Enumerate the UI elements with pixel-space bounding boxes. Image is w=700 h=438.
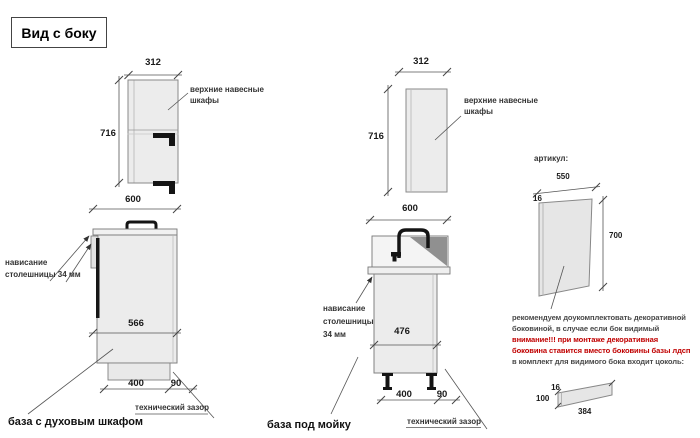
mid-upper-cabinet-label: верхние навесные шкафы	[464, 95, 538, 117]
cabinet-foot-left	[382, 373, 393, 390]
technical-drawing-layer	[0, 0, 700, 438]
panel-warning-line1: внимание!!! при монтаже декоративная	[512, 334, 690, 345]
dim-plinth-thickness: 16	[548, 383, 560, 392]
dim-mid-upper-width: 312	[401, 56, 441, 67]
dim-plinth-height: 100	[536, 394, 549, 403]
mid-upper-cabinet-label-line1: верхние навесные	[464, 95, 538, 106]
side-view-drawing-sheet: Вид с боку 312 716 верхние навесные шкаф…	[0, 0, 700, 438]
oven-door-edge	[96, 238, 100, 318]
dim-panel-thickness: 16	[533, 194, 542, 203]
left-caption-leader	[28, 349, 113, 414]
mid-caption-leader	[331, 357, 358, 414]
dim-left-base-gap: 90	[162, 378, 190, 389]
faucet-spout	[391, 252, 401, 257]
cabinet-foot-right	[426, 373, 437, 390]
mid-tech-gap-label: технический зазор	[406, 416, 482, 427]
left-upper-cabinet-label-line2: шкафы	[190, 95, 264, 106]
page-title: Вид с боку	[11, 17, 107, 48]
left-tech-gap-label: технический зазор	[135, 402, 209, 413]
panel-note-line3: в комплект для видимого бока входит цоко…	[512, 356, 690, 367]
plinth-strip-drawing	[558, 383, 612, 407]
left-overhang-label: нависание столешницы 34 мм	[5, 257, 81, 281]
dim-mid-base-depth: 476	[382, 326, 422, 337]
mid-base-cabinet-body	[374, 274, 437, 373]
dim-mid-upper-height: 716	[356, 131, 396, 142]
mid-upper-cabinet-drawing	[406, 89, 447, 192]
dim-left-base-width: 600	[113, 194, 153, 205]
faucet-spout-tip	[393, 257, 397, 262]
decor-side-panel	[539, 199, 592, 296]
mid-countertop	[368, 267, 450, 274]
mid-overhang-label-line3: 34 мм	[323, 328, 374, 341]
artikul-header: артикул:	[534, 153, 568, 164]
dim-left-base-plinth: 400	[116, 378, 156, 389]
mid-overhang-arrow	[356, 277, 372, 303]
mid-overhang-label-line2: столешницы	[323, 315, 374, 328]
dim-panel-width: 550	[545, 172, 581, 181]
panel-note-block: рекомендуем доукомплектовать декоративно…	[512, 312, 690, 367]
panel-warning-line2: боковина ставится вместо боковины базы л…	[512, 345, 690, 356]
dim-plinth-length: 384	[578, 407, 591, 416]
left-upper-cabinet-label-line1: верхние навесные	[190, 84, 264, 95]
mid-upper-cabinet-label-line2: шкафы	[464, 106, 538, 117]
decor-side-panel-drawing	[539, 199, 592, 296]
left-overhang-label-line2: столешницы 34 мм	[5, 269, 81, 281]
mid-base-caption: база под мойку	[267, 419, 351, 431]
mid-upper-cabinet-body	[406, 89, 447, 192]
left-countertop	[93, 229, 177, 235]
dim-left-base-depth: 566	[116, 318, 156, 329]
dim-left-upper-width: 312	[133, 57, 173, 68]
panel-note-line2: боковиной, в случае если бок видимый	[512, 323, 690, 334]
plinth-strip	[558, 383, 612, 407]
dim-panel-height: 700	[609, 231, 622, 240]
left-upper-cabinet-body	[128, 80, 178, 183]
mid-overhang-label: нависание столешницы 34 мм	[323, 302, 374, 341]
left-upper-cabinet-label: верхние навесные шкафы	[190, 84, 264, 106]
mid-base-cabinet-drawing	[368, 230, 450, 390]
mid-overhang-label-line1: нависание	[323, 302, 374, 315]
left-overhang-label-line1: нависание	[5, 257, 81, 269]
dim-left-upper-height: 716	[88, 128, 128, 139]
dim-mid-base-gap: 90	[428, 389, 456, 400]
dim-mid-base-width: 600	[390, 203, 430, 214]
left-base-cabinet-body	[97, 235, 177, 363]
left-base-caption: база с духовым шкафом	[8, 416, 143, 428]
dim-mid-base-plinth: 400	[384, 389, 424, 400]
panel-note-line1: рекомендуем доукомплектовать декоративно…	[512, 312, 690, 323]
left-upper-cabinet-drawing	[128, 80, 178, 194]
